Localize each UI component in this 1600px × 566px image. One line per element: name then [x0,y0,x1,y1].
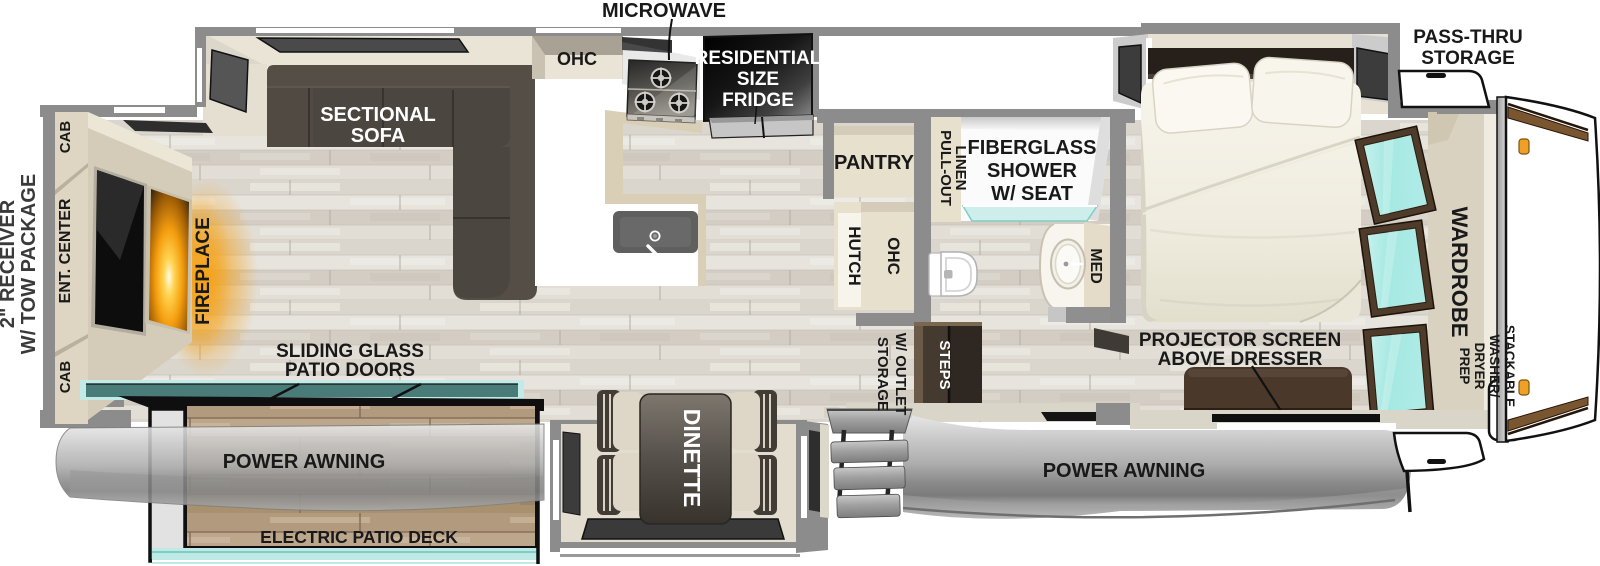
svg-text:WARDROBE: WARDROBE [1447,207,1472,338]
svg-text:SOFA: SOFA [351,125,405,147]
svg-text:STORAGE: STORAGE [874,337,891,411]
svg-text:SHOWER: SHOWER [987,160,1078,182]
svg-text:MED: MED [1087,248,1104,284]
svg-text:PATIO DOORS: PATIO DOORS [285,360,415,381]
svg-text:CAB: CAB [57,361,74,394]
svg-text:STORAGE: STORAGE [1421,48,1515,69]
svg-text:RESIDENTIAL: RESIDENTIAL [695,48,822,69]
svg-text:PASS-THRU: PASS-THRU [1413,27,1522,48]
svg-text:ENT. CENTER: ENT. CENTER [57,198,74,303]
svg-text:PULL-OUT: PULL-OUT [937,130,954,206]
svg-text:PREP: PREP [1457,348,1472,385]
svg-text:MICROWAVE: MICROWAVE [602,0,726,22]
svg-text:W/ SEAT: W/ SEAT [991,183,1073,205]
svg-text:OHC: OHC [557,49,597,69]
svg-text:PROJECTOR SCREEN: PROJECTOR SCREEN [1139,330,1341,351]
svg-text:LINEN: LINEN [952,146,969,191]
svg-text:2" RECEIVER: 2" RECEIVER [0,199,19,328]
svg-text:DRYER: DRYER [1472,343,1487,390]
svg-text:W/ TOW PACKAGE: W/ TOW PACKAGE [18,174,40,354]
svg-text:DINETTE: DINETTE [679,409,705,507]
svg-text:ELECTRIC PATIO DECK: ELECTRIC PATIO DECK [260,527,458,547]
svg-text:FIREPLACE: FIREPLACE [193,217,214,325]
svg-text:ABOVE DRESSER: ABOVE DRESSER [1158,349,1323,370]
svg-text:SLIDING GLASS: SLIDING GLASS [276,341,424,362]
svg-text:WASHER/: WASHER/ [1487,334,1502,397]
svg-text:SECTIONAL: SECTIONAL [320,104,436,126]
svg-text:CAB: CAB [57,121,74,154]
svg-text:OHC: OHC [884,237,903,275]
svg-text:POWER AWNING: POWER AWNING [1043,460,1206,482]
svg-text:POWER AWNING: POWER AWNING [223,451,386,473]
svg-text:PANTRY: PANTRY [834,152,915,174]
svg-text:STACKABLE: STACKABLE [1502,325,1517,407]
svg-text:HUTCH: HUTCH [845,226,864,286]
svg-text:W/ OUTLET: W/ OUTLET [892,333,909,416]
svg-text:SIZE: SIZE [737,69,779,90]
svg-text:FRIDGE: FRIDGE [722,90,794,111]
svg-text:FIBERGLASS: FIBERGLASS [968,137,1097,159]
svg-text:STEPS: STEPS [936,340,953,389]
